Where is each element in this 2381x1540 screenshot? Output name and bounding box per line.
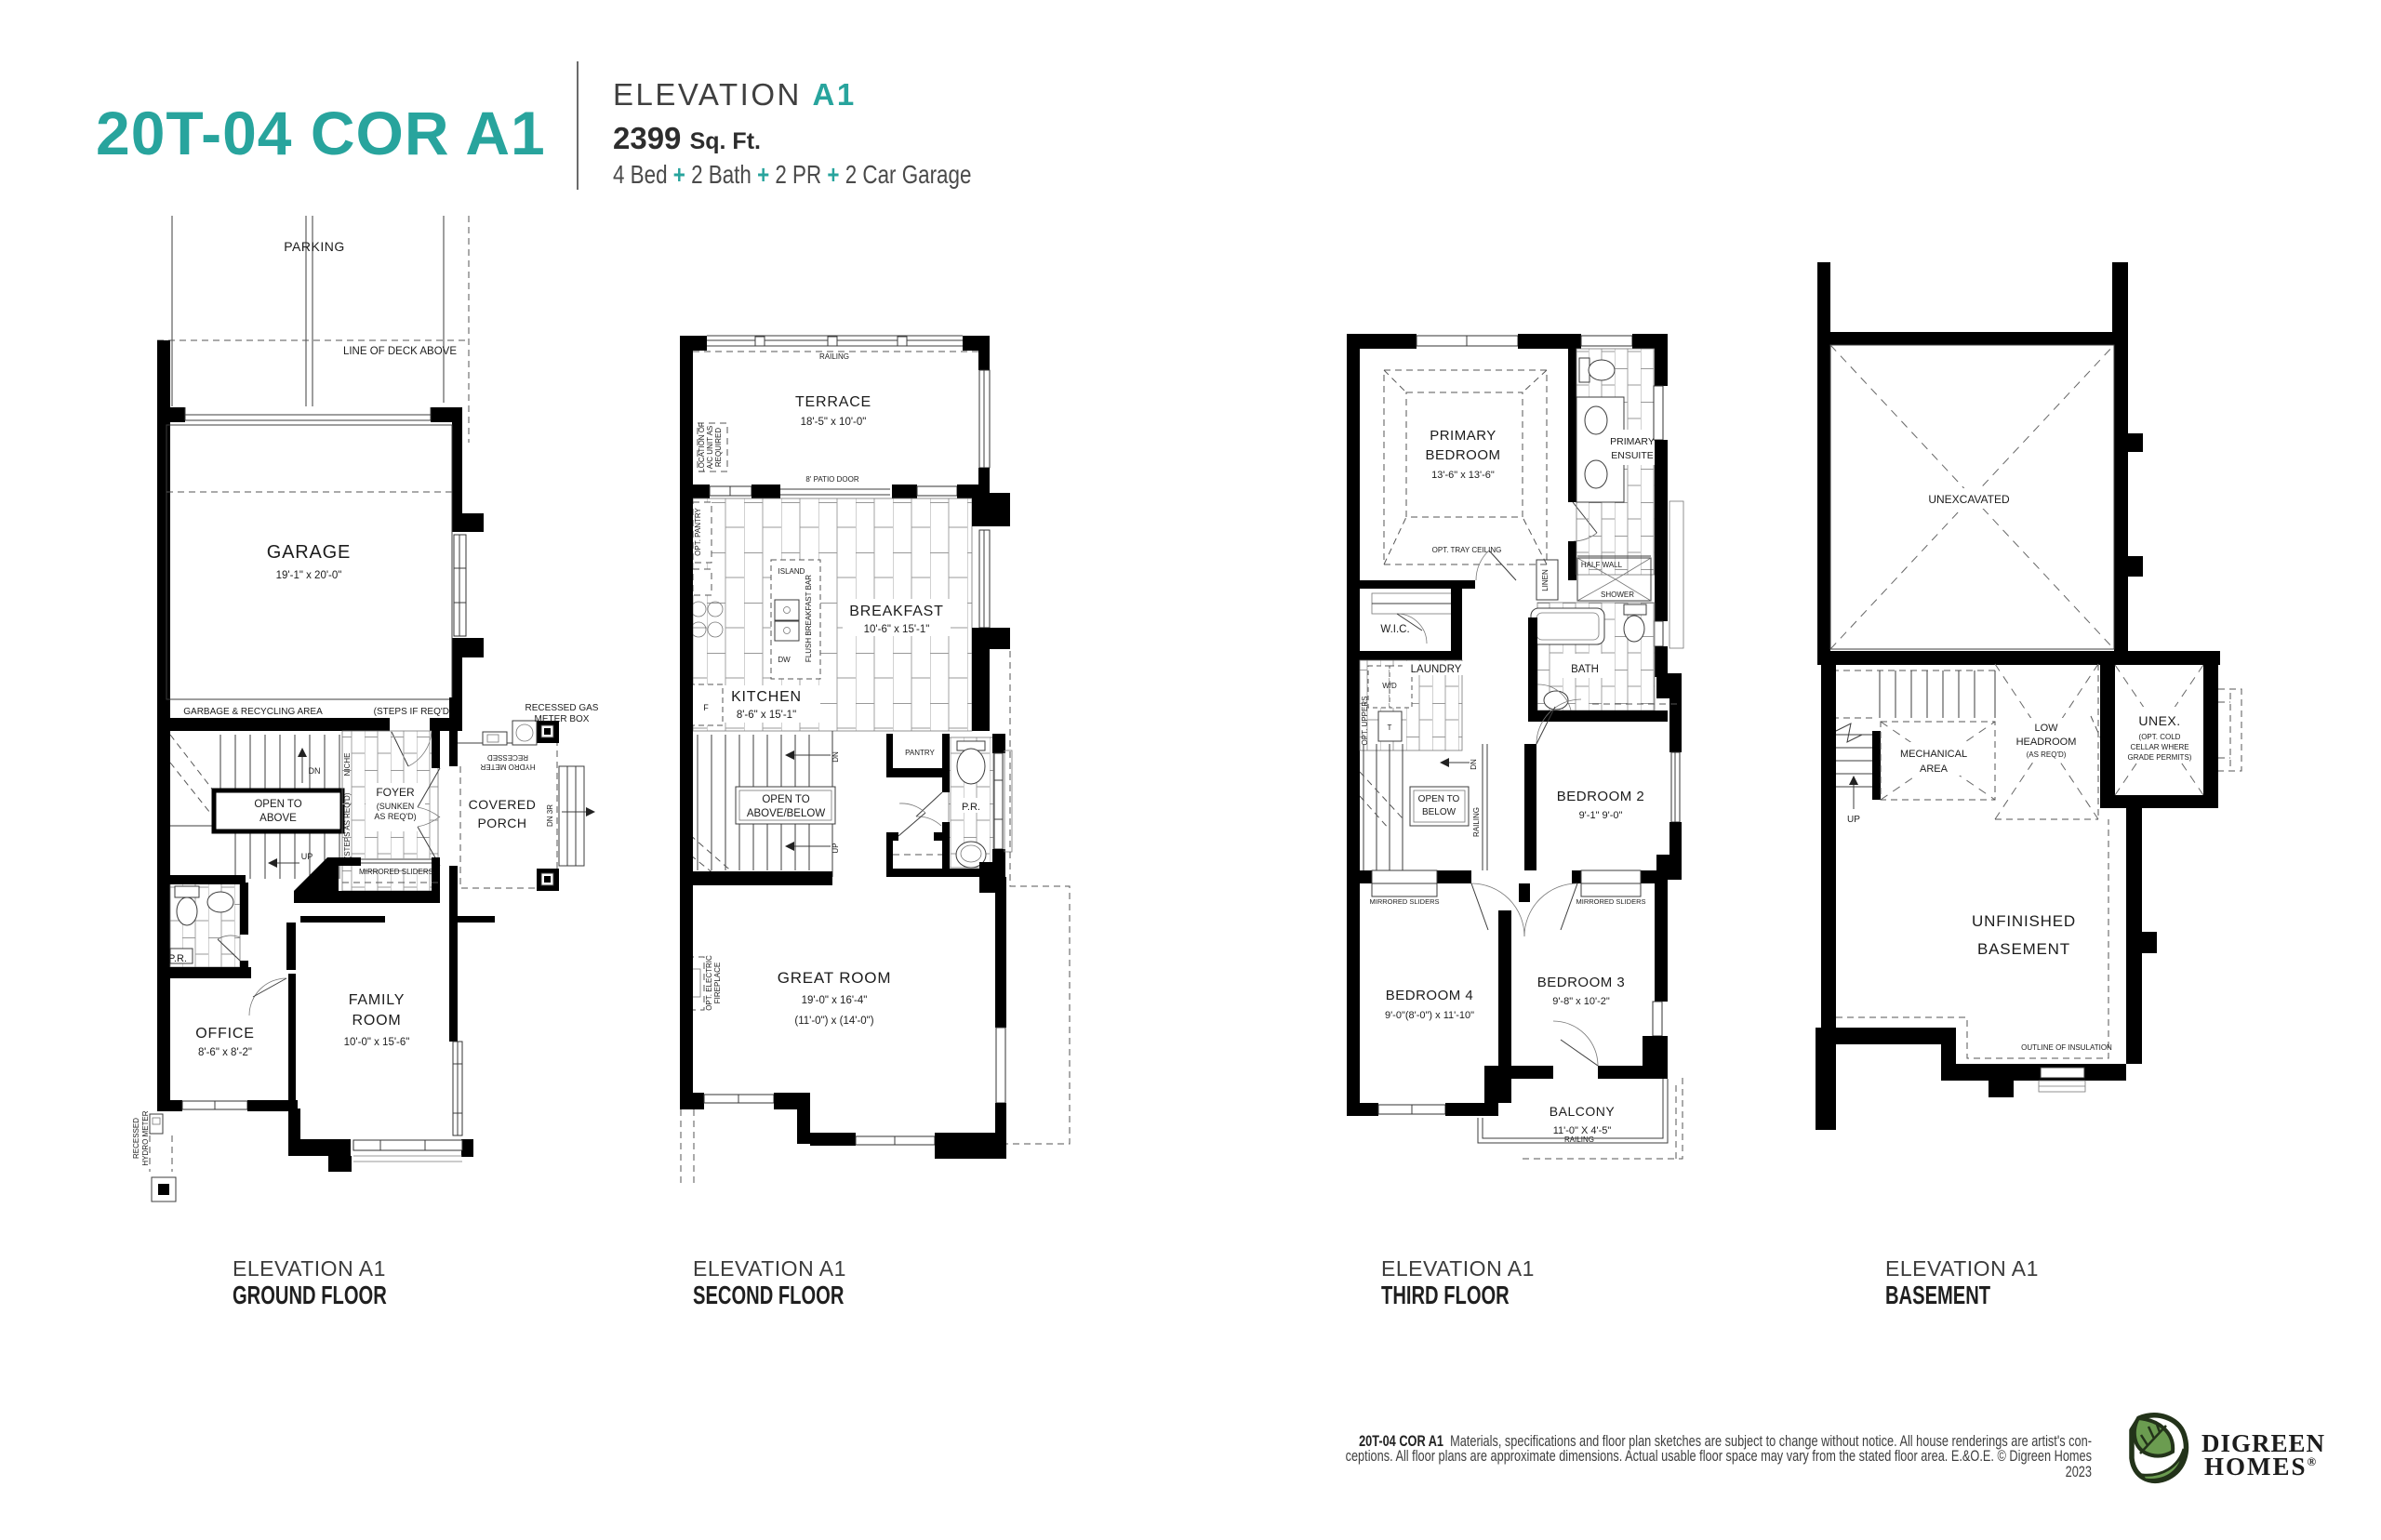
svg-text:BEDROOM 2: BEDROOM 2: [1557, 789, 1645, 804]
svg-text:SHOWER: SHOWER: [1601, 591, 1634, 599]
svg-text:(11'-0") x (14'-0"): (11'-0") x (14'-0"): [794, 1016, 873, 1027]
svg-text:GRADE PERMITS): GRADE PERMITS): [2128, 753, 2192, 762]
svg-text:HALF WALL: HALF WALL: [1581, 561, 1623, 569]
svg-text:ABOVE/BELOW: ABOVE/BELOW: [747, 808, 826, 819]
svg-text:BEDROOM: BEDROOM: [1425, 447, 1500, 463]
svg-text:W/D: W/D: [1382, 682, 1397, 690]
svg-text:F: F: [703, 703, 709, 712]
svg-text:9'-0"(8'-0") x 11'-10": 9'-0"(8'-0") x 11'-10": [1385, 1010, 1474, 1021]
svg-text:LOCATION OF: LOCATION OF: [698, 422, 706, 472]
svg-text:UP: UP: [831, 843, 840, 853]
svg-text:LOW: LOW: [2034, 723, 2058, 734]
svg-text:ISLAND: ISLAND: [778, 567, 805, 576]
svg-text:DN 3R: DN 3R: [546, 804, 554, 827]
svg-text:BEDROOM 4: BEDROOM 4: [1386, 988, 1474, 1003]
svg-text:MIRRORED SLIDERS: MIRRORED SLIDERS: [1369, 897, 1439, 906]
svg-text:(STEPS IF REQ'D): (STEPS IF REQ'D): [374, 707, 453, 717]
svg-text:8' PATIO DOOR: 8' PATIO DOOR: [805, 475, 858, 484]
svg-text:A/C UNIT AS: A/C UNIT AS: [706, 426, 714, 470]
svg-text:RAILING: RAILING: [1564, 1135, 1594, 1144]
svg-text:FOYER: FOYER: [376, 786, 415, 799]
svg-text:LINEN: LINEN: [1541, 569, 1550, 591]
svg-text:GREAT ROOM: GREAT ROOM: [778, 969, 892, 987]
svg-text:PARKING: PARKING: [284, 239, 344, 254]
svg-text:DN: DN: [831, 751, 840, 763]
svg-text:RAILING: RAILING: [819, 352, 849, 361]
svg-text:KITCHEN: KITCHEN: [731, 689, 802, 705]
svg-text:OPT. PANTRY: OPT. PANTRY: [694, 507, 702, 555]
svg-text:DW: DW: [778, 656, 791, 664]
svg-text:ROOM: ROOM: [352, 1013, 402, 1029]
svg-text:18'-5" x 10'-0": 18'-5" x 10'-0": [801, 417, 867, 428]
svg-text:OPEN TO: OPEN TO: [762, 794, 809, 805]
svg-text:PRIMARY: PRIMARY: [1430, 428, 1496, 444]
svg-text:OPEN TO: OPEN TO: [254, 799, 301, 810]
svg-text:FIREPLACE: FIREPLACE: [713, 962, 722, 1003]
svg-text:DN: DN: [309, 766, 321, 776]
svg-text:METER BOX: METER BOX: [535, 714, 590, 724]
svg-text:BEDROOM 3: BEDROOM 3: [1537, 975, 1626, 990]
svg-text:UP: UP: [1847, 815, 1860, 825]
svg-text:TERRACE: TERRACE: [795, 394, 871, 410]
svg-text:FAMILY: FAMILY: [349, 992, 406, 1008]
svg-text:MECHANICAL: MECHANICAL: [1900, 749, 1967, 760]
svg-text:10'-0" x 15'-6": 10'-0" x 15'-6": [344, 1037, 410, 1048]
svg-text:UNEX.: UNEX.: [2138, 713, 2180, 728]
svg-text:RECESSED GAS: RECESSED GAS: [525, 703, 599, 713]
svg-text:HEADROOM: HEADROOM: [2016, 737, 2077, 748]
svg-text:UP: UP: [301, 852, 313, 861]
svg-text:COVERED: COVERED: [469, 797, 537, 812]
svg-text:ENSUITE: ENSUITE: [1611, 450, 1654, 461]
svg-text:REQUIRED: REQUIRED: [714, 428, 723, 467]
svg-text:OFFICE: OFFICE: [195, 1026, 254, 1042]
svg-text:HOMES®: HOMES®: [2204, 1453, 2318, 1480]
svg-text:BALCONY: BALCONY: [1550, 1104, 1616, 1119]
svg-text:BREAKFAST: BREAKFAST: [849, 604, 943, 619]
svg-text:8'-6" x 15'-1": 8'-6" x 15'-1": [737, 710, 796, 721]
svg-text:9'-8" x 10'-2": 9'-8" x 10'-2": [1552, 996, 1610, 1007]
svg-text:OUTLINE OF INSULATION: OUTLINE OF INSULATION: [2021, 1043, 2112, 1052]
svg-text:8'-6" x 8'-2": 8'-6" x 8'-2": [198, 1047, 252, 1058]
svg-text:BATH: BATH: [1571, 664, 1599, 675]
svg-text:PRIMARY: PRIMARY: [1610, 436, 1655, 447]
svg-text:GARBAGE & RECYCLING AREA: GARBAGE & RECYCLING AREA: [183, 707, 323, 717]
svg-text:10'-6" x 15'-1": 10'-6" x 15'-1": [864, 624, 930, 635]
svg-text:FLUSH BREAKFAST BAR: FLUSH BREAKFAST BAR: [805, 575, 813, 662]
svg-text:(OPT. COLD: (OPT. COLD: [2139, 733, 2181, 741]
svg-text:UNEXCAVATED: UNEXCAVATED: [1928, 493, 2010, 506]
svg-text:13'-6" x 13'-6": 13'-6" x 13'-6": [1431, 470, 1495, 481]
svg-text:MIRRORED SLIDERS: MIRRORED SLIDERS: [359, 868, 433, 876]
svg-text:AS REQ'D): AS REQ'D): [374, 812, 416, 821]
svg-text:CELLAR WHERE: CELLAR WHERE: [2130, 743, 2188, 751]
svg-text:LINE OF DECK ABOVE: LINE OF DECK ABOVE: [343, 346, 457, 357]
svg-text:RAILING: RAILING: [1472, 807, 1481, 837]
svg-text:OPT. UPPERS: OPT. UPPERS: [1361, 697, 1369, 746]
svg-text:OPEN TO: OPEN TO: [1418, 794, 1460, 804]
svg-text:BASEMENT: BASEMENT: [1977, 940, 2070, 958]
svg-text:LAUNDRY: LAUNDRY: [1411, 664, 1462, 675]
svg-text:PANTRY: PANTRY: [905, 749, 935, 757]
svg-text:W.I.C.: W.I.C.: [1380, 624, 1409, 635]
svg-text:P.R.: P.R.: [168, 953, 187, 964]
svg-text:(SUNKEN: (SUNKEN: [377, 802, 415, 811]
svg-text:DN: DN: [1470, 759, 1478, 770]
svg-text:BELOW: BELOW: [1422, 807, 1457, 817]
svg-text:T: T: [1388, 724, 1392, 732]
svg-text:MIRRORED SLIDERS: MIRRORED SLIDERS: [1576, 897, 1645, 906]
svg-text:PORCH: PORCH: [477, 816, 526, 830]
svg-text:ABOVE: ABOVE: [259, 813, 297, 824]
svg-text:AREA: AREA: [1920, 763, 1949, 775]
svg-text:19'-0" x 16'-4": 19'-0" x 16'-4": [802, 995, 868, 1006]
svg-text:OPT. ELECTRIC: OPT. ELECTRIC: [705, 955, 713, 1011]
svg-text:GARAGE: GARAGE: [267, 542, 351, 563]
svg-text:UNFINISHED: UNFINISHED: [1972, 912, 2076, 930]
svg-text:19'-1" x 20'-0": 19'-1" x 20'-0": [276, 570, 342, 581]
svg-text:RECESSEDHYDRO METER: RECESSEDHYDRO METER: [132, 1110, 150, 1165]
svg-text:P.R.: P.R.: [962, 802, 980, 813]
svg-text:9'-1" 9'-0": 9'-1" 9'-0": [1579, 810, 1623, 821]
svg-text:(AS REQ'D): (AS REQ'D): [2027, 750, 2067, 759]
svg-text:RECESSEDHYDRO METER: RECESSEDHYDRO METER: [480, 753, 535, 771]
